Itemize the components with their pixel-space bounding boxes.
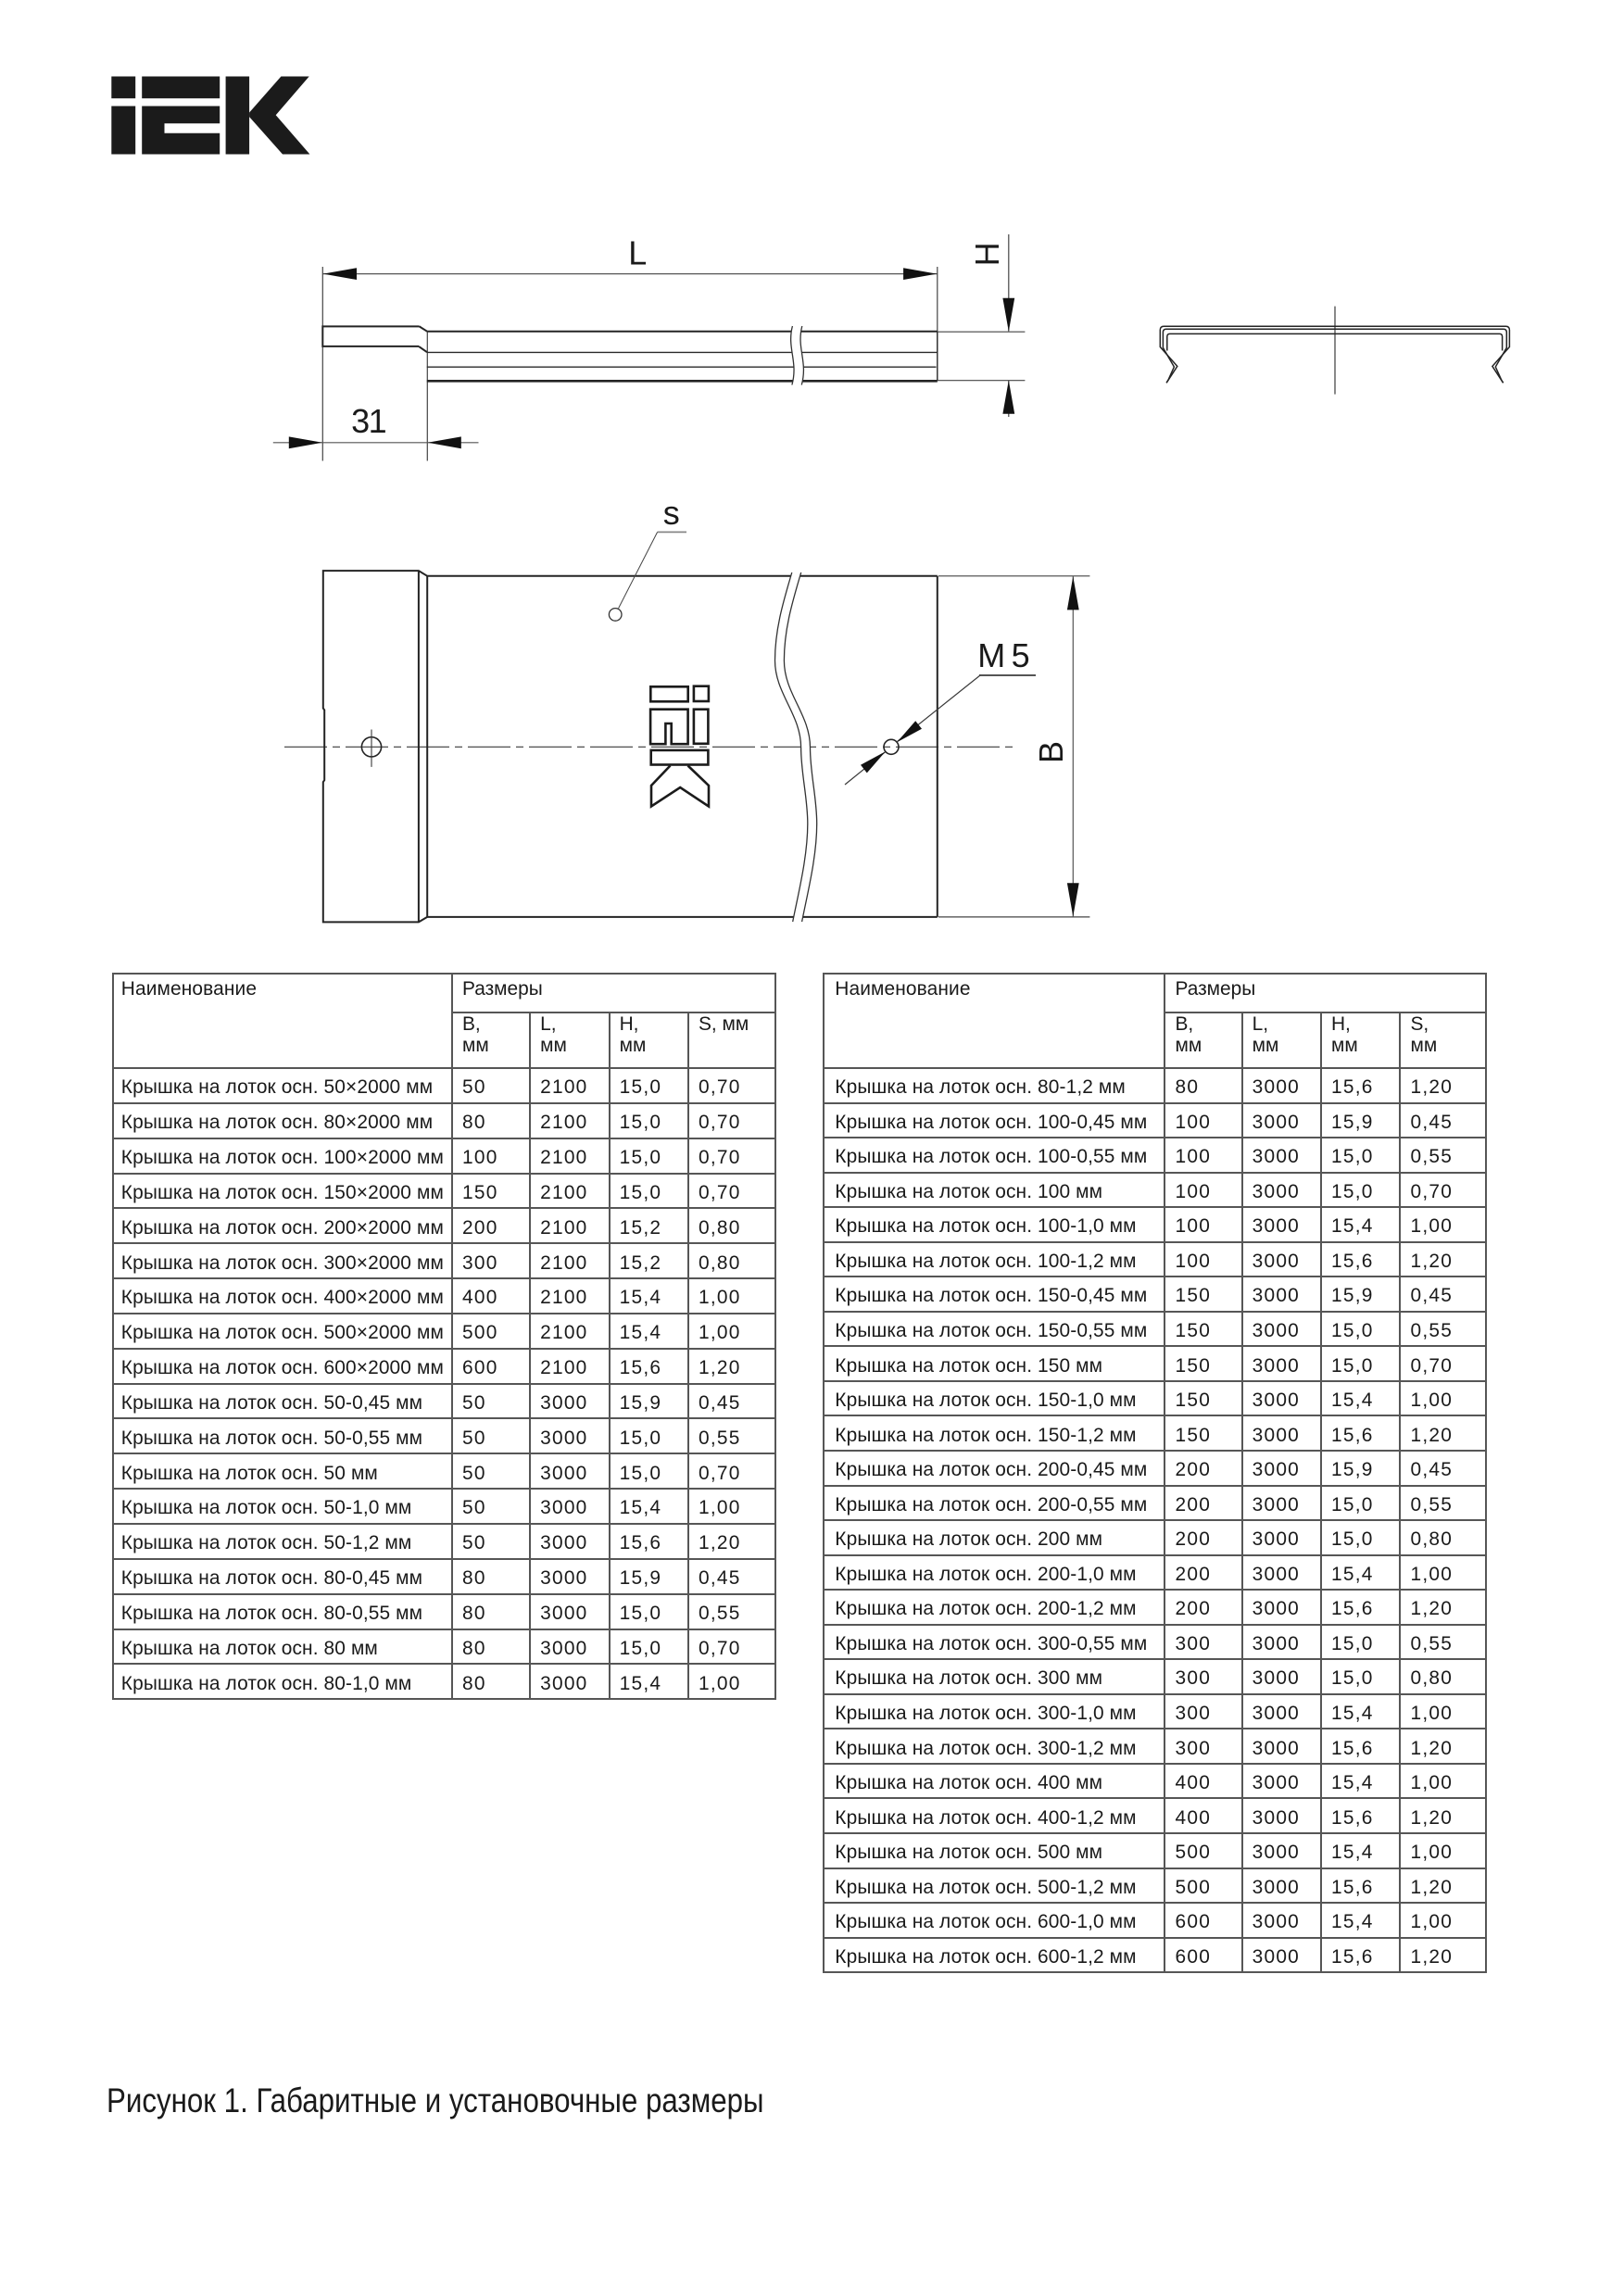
svg-text:L: L [628,233,647,271]
svg-text:31: 31 [351,402,386,440]
svg-text:B: B [1032,741,1070,763]
svg-text:M 5: M 5 [977,636,1028,674]
svg-text:H: H [968,242,1006,266]
svg-text:s: s [663,494,680,532]
